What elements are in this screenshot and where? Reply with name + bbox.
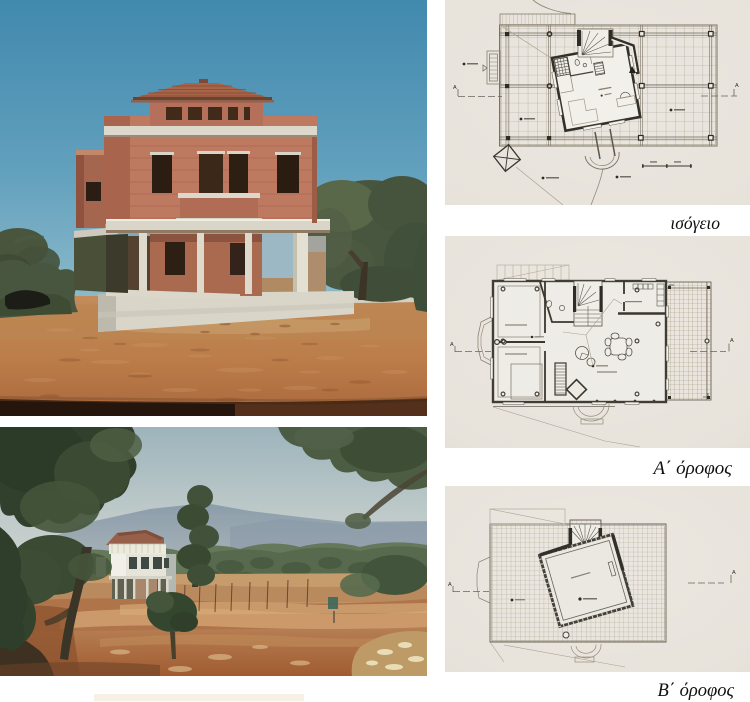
svg-text:A: A: [450, 342, 454, 348]
svg-text:A: A: [730, 338, 734, 344]
svg-text:A: A: [453, 85, 457, 91]
svg-text:A: A: [448, 582, 452, 588]
svg-text:A: A: [735, 83, 739, 89]
svg-text:A: A: [732, 570, 736, 576]
